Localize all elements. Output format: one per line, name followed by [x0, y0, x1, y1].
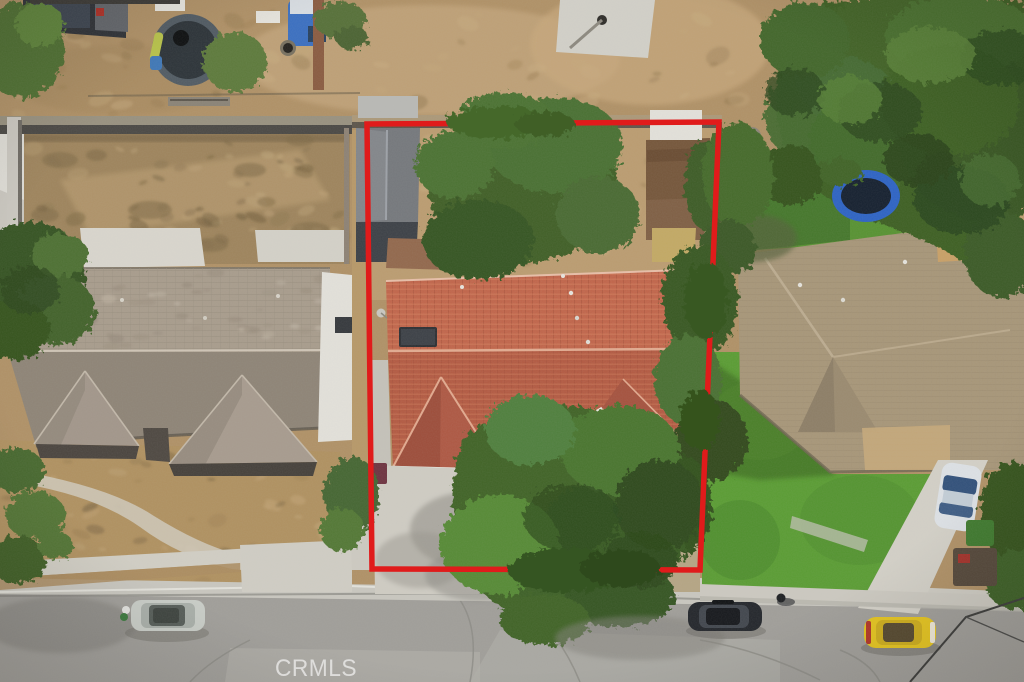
svg-text:CRMLS: CRMLS — [275, 655, 357, 682]
